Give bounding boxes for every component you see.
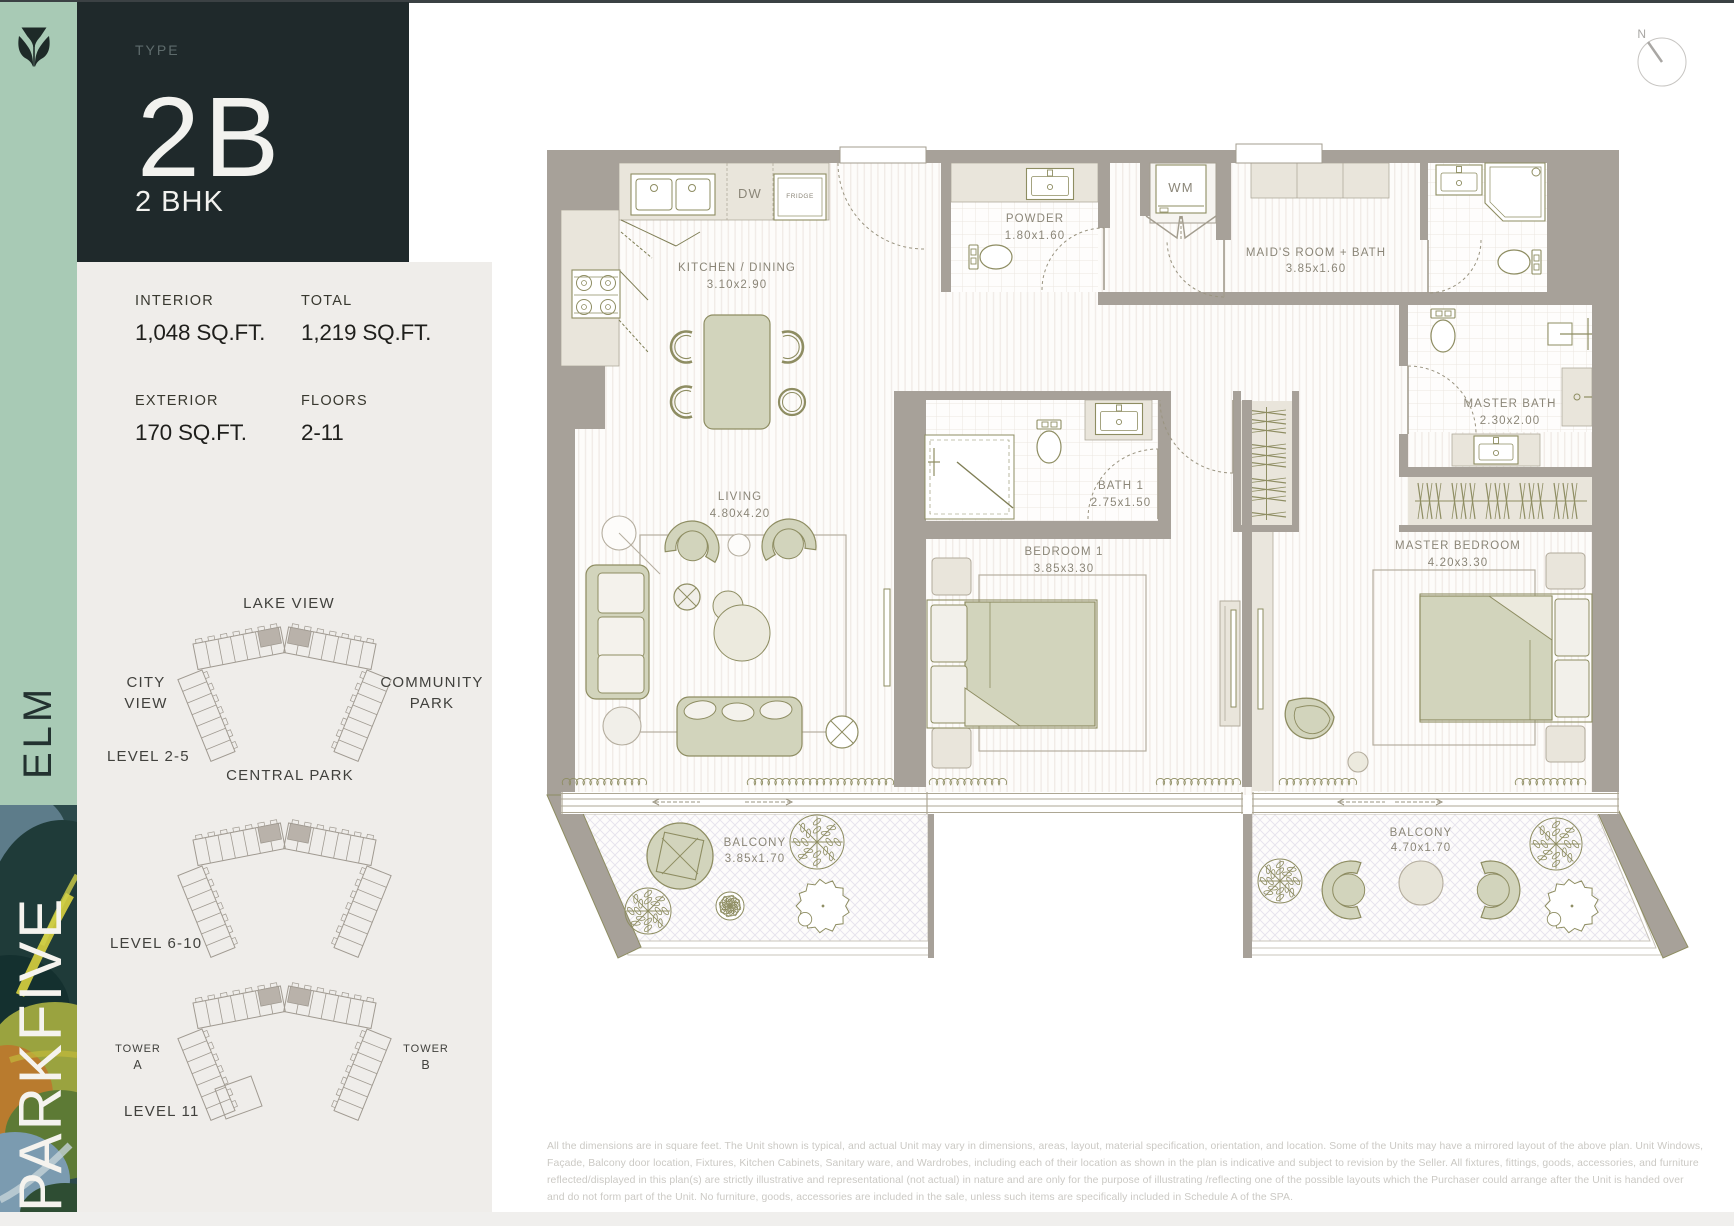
svg-text:WM: WM xyxy=(1168,180,1194,195)
svg-text:BALCONY: BALCONY xyxy=(724,837,787,849)
svg-text:3.10x2.90: 3.10x2.90 xyxy=(707,279,767,291)
svg-text:BEDROOM 1: BEDROOM 1 xyxy=(1025,546,1104,558)
svg-text:4.80x4.20: 4.80x4.20 xyxy=(710,508,770,520)
svg-text:2.30x2.00: 2.30x2.00 xyxy=(1480,415,1540,427)
svg-text:POWDER: POWDER xyxy=(1006,213,1064,225)
svg-text:4.20x3.30: 4.20x3.30 xyxy=(1428,557,1488,569)
svg-text:4.70x1.70: 4.70x1.70 xyxy=(1391,842,1451,854)
svg-text:MASTER BEDROOM: MASTER BEDROOM xyxy=(1395,540,1521,552)
svg-text:N: N xyxy=(1637,27,1646,41)
svg-text:MASTER BATH: MASTER BATH xyxy=(1463,398,1556,410)
svg-text:KITCHEN / DINING: KITCHEN / DINING xyxy=(678,262,796,274)
svg-text:LIVING: LIVING xyxy=(718,491,762,503)
svg-text:MAID'S ROOM + BATH: MAID'S ROOM + BATH xyxy=(1246,247,1386,259)
svg-text:DW: DW xyxy=(738,186,762,201)
svg-text:3.85x1.60: 3.85x1.60 xyxy=(1286,263,1346,275)
svg-text:BATH 1: BATH 1 xyxy=(1098,480,1144,492)
svg-text:3.85x1.70: 3.85x1.70 xyxy=(725,853,785,865)
svg-text:3.85x3.30: 3.85x3.30 xyxy=(1034,563,1094,575)
svg-text:BALCONY: BALCONY xyxy=(1390,827,1453,839)
svg-text:2.75x1.50: 2.75x1.50 xyxy=(1091,497,1151,509)
svg-text:1.80x1.60: 1.80x1.60 xyxy=(1005,230,1065,242)
svg-text:FRIDGE: FRIDGE xyxy=(786,193,814,200)
